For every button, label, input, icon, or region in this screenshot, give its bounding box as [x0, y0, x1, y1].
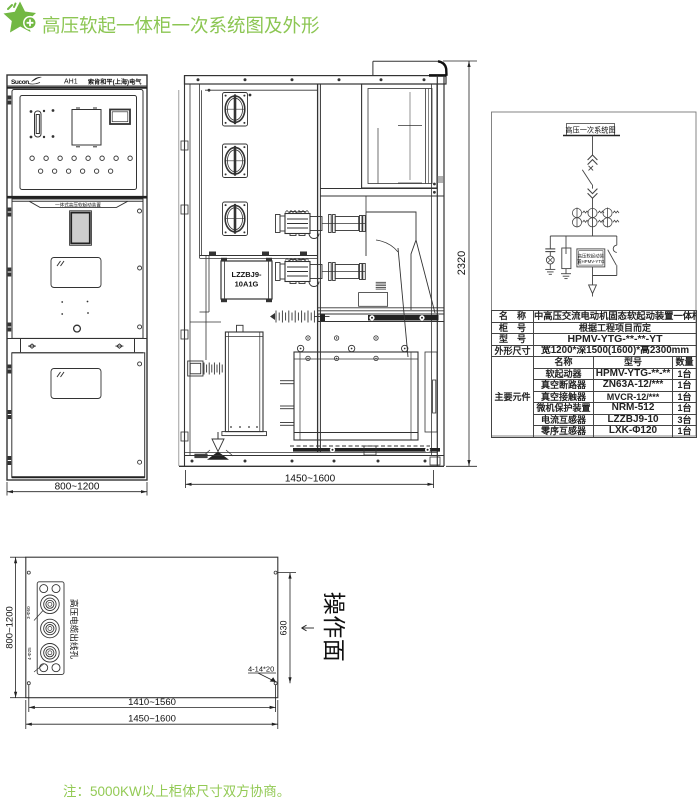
svg-text:10A1G: 10A1G: [235, 280, 259, 289]
svg-text:630: 630: [279, 620, 289, 635]
svg-text:LZZBJ9-: LZZBJ9-: [232, 270, 263, 279]
svg-text:索肯和平(上海)电气: 索肯和平(上海)电气: [88, 78, 142, 86]
svg-text:AH1: AH1: [64, 79, 78, 86]
svg-text:一体式高压软起动装置: 一体式高压软起动装置: [55, 202, 101, 209]
svg-text:800~1200: 800~1200: [5, 606, 16, 649]
svg-text:置HPMV-YTG: 置HPMV-YTG: [577, 259, 605, 265]
svg-text:800~1200: 800~1200: [55, 482, 100, 493]
svg-text:1450~1600: 1450~1600: [285, 474, 336, 485]
svg-text:4-14*20: 4-14*20: [248, 665, 274, 674]
svg-text:Sucon: Sucon: [11, 79, 29, 86]
svg-text:高压一次系统图: 高压一次系统图: [565, 126, 615, 135]
svg-text:3-Φ50: 3-Φ50: [26, 606, 31, 619]
svg-text:1450~1600: 1450~1600: [128, 714, 176, 725]
svg-text:1410~1560: 1410~1560: [128, 697, 176, 708]
svg-text:4-Φ25: 4-Φ25: [27, 647, 32, 660]
svg-text:2320: 2320: [456, 251, 468, 275]
svg-text:高压电缆出线孔: 高压电缆出线孔: [69, 599, 80, 660]
